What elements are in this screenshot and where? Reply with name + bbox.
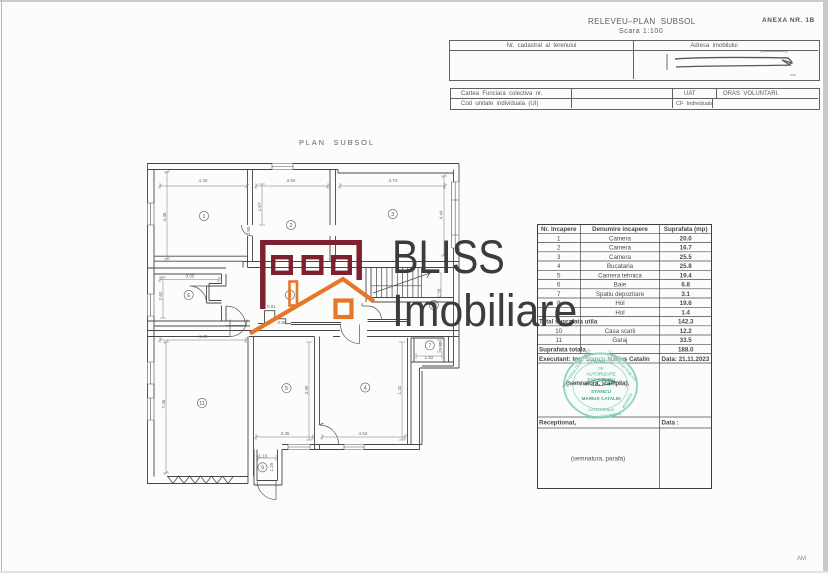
svg-text:3.74: 3.74 — [389, 178, 398, 183]
svg-text:Data: 21.11.2023: Data: 21.11.2023 — [662, 356, 710, 363]
svg-text:7.46: 7.46 — [161, 399, 166, 408]
svg-text:(semnatura, parafa): (semnatura, parafa) — [571, 456, 625, 463]
svg-text:Camera: Camera — [609, 235, 632, 242]
svg-text:CATEGORIA B: CATEGORIA B — [588, 408, 614, 412]
svg-text:Spatiu depozitare: Spatiu depozitare — [596, 291, 645, 298]
svg-text:Camera: Camera — [609, 245, 632, 252]
svg-text:33.5: 33.5 — [680, 337, 693, 344]
svg-text:12.2: 12.2 — [680, 328, 693, 335]
svg-text:1: 1 — [203, 214, 206, 220]
svg-text:16.7: 16.7 — [680, 245, 693, 252]
svg-text:Hol: Hol — [615, 300, 624, 307]
svg-text:1.65: 1.65 — [438, 341, 443, 350]
svg-text:19.4: 19.4 — [680, 272, 693, 279]
svg-text:Suprafata (mp): Suprafata (mp) — [664, 226, 708, 233]
svg-text:2.62: 2.62 — [158, 291, 163, 300]
svg-text:3.35: 3.35 — [281, 431, 290, 436]
svg-text:4: 4 — [364, 386, 367, 392]
svg-text:1.16: 1.16 — [259, 454, 268, 459]
svg-text:CERTIFICAT: CERTIFICAT — [588, 360, 615, 365]
svg-text:1.25: 1.25 — [269, 462, 274, 471]
svg-text:Bucataria: Bucataria — [607, 263, 634, 270]
svg-text:25.8: 25.8 — [680, 263, 693, 270]
svg-text:Camera: Camera — [609, 254, 632, 261]
svg-text:2.57: 2.57 — [257, 202, 262, 211]
svg-text:6: 6 — [187, 293, 190, 299]
svg-text:20.0: 20.0 — [680, 235, 693, 242]
svg-text:4.49: 4.49 — [199, 334, 208, 339]
svg-text:Baie: Baie — [614, 282, 627, 289]
svg-text:4.54: 4.54 — [359, 431, 368, 436]
svg-text:9: 9 — [261, 465, 264, 471]
svg-text:3.90: 3.90 — [304, 385, 309, 394]
svg-text:7: 7 — [428, 343, 431, 349]
svg-text:3: 3 — [391, 212, 394, 218]
svg-text:3.05: 3.05 — [186, 274, 195, 279]
svg-text:1.4: 1.4 — [681, 309, 690, 316]
svg-text:Data :: Data : — [662, 420, 679, 427]
svg-text:25.5: 25.5 — [680, 254, 693, 261]
svg-text:1.82: 1.82 — [425, 355, 434, 360]
svg-text:2: 2 — [290, 223, 293, 229]
svg-text:11: 11 — [199, 401, 205, 407]
svg-text:3.1: 3.1 — [681, 291, 690, 298]
svg-text:5: 5 — [285, 386, 288, 392]
svg-text:MARIUS CATALIN: MARIUS CATALIN — [582, 396, 622, 401]
svg-text:188.0: 188.0 — [678, 346, 694, 353]
svg-text:STANCU: STANCU — [591, 389, 611, 395]
svg-text:4.46: 4.46 — [162, 212, 167, 221]
svg-text:Denumire incapere: Denumire incapere — [592, 226, 648, 233]
svg-text:19.6: 19.6 — [680, 300, 693, 307]
svg-text:Hol: Hol — [615, 309, 624, 316]
svg-text:3.94: 3.94 — [287, 178, 296, 183]
svg-text:Camera tehnica: Camera tehnica — [598, 272, 642, 279]
svg-text:Casa scarii: Casa scarii — [605, 328, 636, 335]
svg-text:142.3: 142.3 — [678, 319, 694, 326]
svg-text:DE: DE — [598, 366, 604, 371]
svg-text:4.44: 4.44 — [439, 210, 444, 219]
svg-text:1.42: 1.42 — [397, 385, 402, 394]
svg-text:4.40: 4.40 — [199, 178, 208, 183]
svg-text:AUTORIZARE: AUTORIZARE — [586, 372, 616, 377]
svg-text:6.8: 6.8 — [681, 282, 690, 289]
